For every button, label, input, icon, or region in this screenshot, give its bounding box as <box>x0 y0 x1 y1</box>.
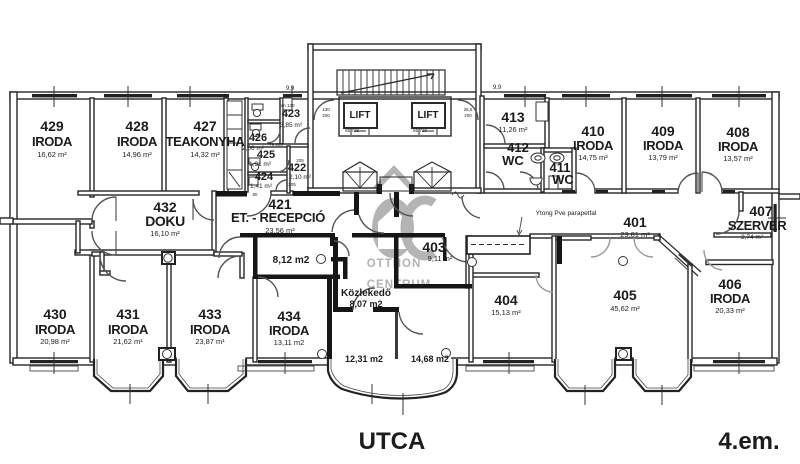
svg-text:13,11 m2: 13,11 m2 <box>274 338 305 347</box>
svg-text:TEAKONYHA: TEAKONYHA <box>166 134 246 149</box>
svg-text:IRODA: IRODA <box>710 291 751 306</box>
svg-text:16,10 m²: 16,10 m² <box>150 229 180 238</box>
svg-text:14,32 m²: 14,32 m² <box>190 150 220 159</box>
svg-text:423: 423 <box>282 108 300 120</box>
svg-text:Közlekedő: Közlekedő <box>341 288 391 299</box>
svg-text:21,62 m¹: 21,62 m¹ <box>113 337 143 346</box>
svg-text:IRODA: IRODA <box>643 138 684 153</box>
svg-text:IRODA: IRODA <box>117 134 158 149</box>
svg-text:13,79 m²: 13,79 m² <box>648 153 678 162</box>
svg-text:IRODA: IRODA <box>108 322 149 337</box>
svg-text:2,10 m²: 2,10 m² <box>289 174 312 181</box>
svg-text:405: 405 <box>613 287 637 303</box>
svg-text:23,87 m¹: 23,87 m¹ <box>195 337 225 346</box>
svg-text:IRODA: IRODA <box>269 323 310 338</box>
svg-text:ET. - RECEPCIÓ: ET. - RECEPCIÓ <box>231 210 325 225</box>
svg-text:12,31 m2: 12,31 m2 <box>345 354 383 364</box>
svg-text:IRODA: IRODA <box>718 139 759 154</box>
svg-text:404: 404 <box>494 292 518 308</box>
svg-text:LIFT: LIFT <box>349 110 370 121</box>
svg-text:SZERVER: SZERVER <box>728 218 787 233</box>
svg-text:430: 430 <box>43 306 67 322</box>
svg-text:429: 429 <box>40 118 64 134</box>
svg-text:1,41 m²: 1,41 m² <box>250 183 273 190</box>
svg-text:9,9: 9,9 <box>493 85 502 91</box>
svg-text:IRODA: IRODA <box>32 134 73 149</box>
svg-text:23,56 m²: 23,56 m² <box>265 226 295 235</box>
svg-text:WC: WC <box>502 153 524 168</box>
svg-text:85 718: 85 718 <box>413 128 427 133</box>
svg-text:Ytong Pve parapetfal: Ytong Pve parapetfal <box>536 210 597 217</box>
svg-text:11,26 m²: 11,26 m² <box>498 125 528 134</box>
svg-text:406: 406 <box>718 276 742 292</box>
svg-text:3,85 m²: 3,85 m² <box>280 122 303 129</box>
svg-text:403: 403 <box>422 239 446 255</box>
svg-text:200: 200 <box>464 113 472 118</box>
svg-text:9,9: 9,9 <box>286 86 295 92</box>
svg-text:433: 433 <box>198 306 222 322</box>
svg-text:UTCA: UTCA <box>359 428 426 455</box>
svg-text:15,13 m²: 15,13 m² <box>491 308 521 317</box>
svg-text:13,57 m²: 13,57 m² <box>723 154 753 163</box>
svg-text:90: 90 <box>252 192 258 197</box>
svg-text:20,33 m²: 20,33 m² <box>715 306 745 315</box>
svg-text:407: 407 <box>749 203 773 219</box>
svg-text:23,81 m²: 23,81 m² <box>620 230 650 239</box>
svg-text:434: 434 <box>277 308 301 324</box>
svg-text:14,96 m²: 14,96 m² <box>122 150 152 159</box>
svg-text:26,5: 26,5 <box>464 107 473 112</box>
svg-text:8,12 m2: 8,12 m2 <box>273 255 310 266</box>
svg-text:IRODA: IRODA <box>190 322 231 337</box>
svg-text:424: 424 <box>255 171 274 183</box>
svg-text:WC: WC <box>552 172 574 187</box>
svg-text:422: 422 <box>288 162 306 174</box>
svg-text:45,62 m²: 45,62 m² <box>610 304 640 313</box>
svg-text:425: 425 <box>257 149 275 161</box>
svg-text:14,68 m2: 14,68 m2 <box>411 354 449 364</box>
svg-text:409: 409 <box>651 123 675 139</box>
svg-text:428: 428 <box>125 118 149 134</box>
svg-text:426: 426 <box>249 132 267 144</box>
svg-text:LIFT: LIFT <box>417 110 438 121</box>
svg-text:IRODA: IRODA <box>573 138 614 153</box>
svg-text:1,91 m²: 1,91 m² <box>249 161 272 168</box>
svg-text:85 718: 85 718 <box>345 128 359 133</box>
svg-text:2,74 m²: 2,74 m² <box>741 234 764 241</box>
svg-text:427: 427 <box>193 118 217 134</box>
svg-text:410: 410 <box>581 123 605 139</box>
svg-text:200: 200 <box>322 113 330 118</box>
svg-text:79 205: 79 205 <box>269 142 283 147</box>
svg-text:205: 205 <box>296 158 304 163</box>
svg-text:408: 408 <box>726 124 750 140</box>
svg-text:90: 90 <box>297 192 303 197</box>
svg-text:431: 431 <box>116 306 140 322</box>
svg-text:8,07 m2: 8,07 m2 <box>349 299 382 309</box>
svg-text:130: 130 <box>322 107 330 112</box>
svg-text:pm 130: pm 130 <box>279 103 295 108</box>
svg-text:413: 413 <box>501 109 525 125</box>
svg-text:16,62 m²: 16,62 m² <box>37 150 67 159</box>
svg-text:DOKU: DOKU <box>145 213 185 229</box>
svg-text:4.em.: 4.em. <box>718 428 779 455</box>
svg-text:IRODA: IRODA <box>35 322 76 337</box>
svg-text:9,11 m²: 9,11 m² <box>428 254 453 263</box>
svg-text:401: 401 <box>623 214 647 230</box>
svg-text:20,98 m²: 20,98 m² <box>40 337 70 346</box>
svg-text:205: 205 <box>288 182 296 187</box>
svg-text:14,75 m²: 14,75 m² <box>578 153 608 162</box>
